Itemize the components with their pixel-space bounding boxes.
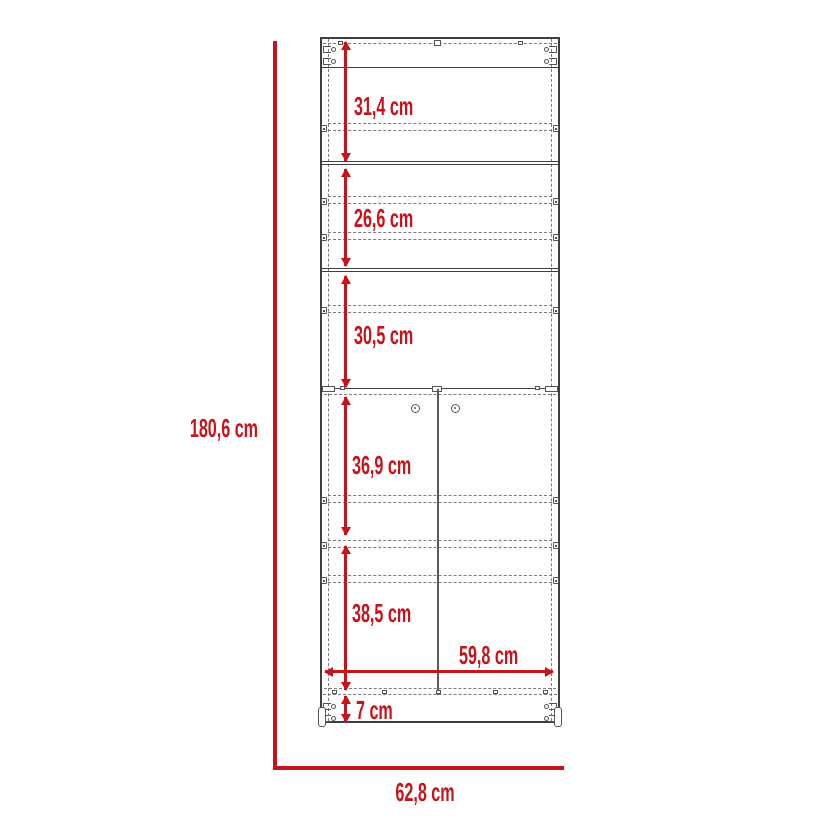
section-height-label: 30,5 cm	[354, 322, 413, 348]
cam-lock-icon	[436, 690, 441, 694]
dimension-arrow-second-opening	[344, 169, 347, 266]
shelf-hole-row	[328, 575, 552, 583]
shelf-peg-icon	[321, 125, 327, 132]
dimension-arrow-inner-width	[325, 670, 553, 673]
shelf-hole-row	[328, 305, 552, 313]
cam-lock-icon	[543, 46, 557, 53]
dimension-arrow-third-opening	[344, 276, 347, 387]
shelf-peg-icon	[321, 497, 327, 504]
shelf-hole-row	[328, 495, 552, 503]
fixed-shelf-line	[322, 161, 558, 165]
door-top-dashed-line	[324, 394, 556, 395]
shelf-peg-icon	[553, 234, 559, 241]
hinge-tick-icon	[545, 386, 558, 392]
cam-lock-icon	[332, 690, 337, 694]
overall-height-label: 180,6 cm	[134, 415, 258, 441]
overall-width-label: 62,8 cm	[363, 779, 487, 805]
shelf-peg-icon	[553, 125, 559, 132]
right-panel-dashed-edge	[551, 39, 552, 721]
cam-lock-icon	[434, 40, 441, 46]
cam-lock-icon	[382, 690, 387, 694]
overall-height-dimension-line	[273, 41, 277, 770]
shelf-peg-icon	[321, 198, 327, 205]
shelf-peg-icon	[321, 307, 327, 314]
door-bottom-dashed-line	[324, 688, 556, 689]
hinge-tick-icon	[322, 386, 335, 392]
fixed-shelf-line	[322, 268, 558, 272]
shelf-peg-icon	[553, 198, 559, 205]
overall-width-dimension-line	[273, 766, 564, 770]
hinge-tick-icon	[535, 386, 540, 390]
cam-lock-icon	[323, 46, 337, 53]
dimension-arrow-top-opening	[344, 42, 347, 161]
shelf-peg-icon	[553, 577, 559, 584]
dimension-arrow-door-upper	[344, 397, 347, 535]
shelf-peg-icon	[553, 497, 559, 504]
cam-lock-icon	[543, 690, 548, 694]
door-knob-icon	[451, 404, 460, 413]
top-rail-line	[322, 67, 558, 68]
section-height-label: 7 cm	[356, 697, 393, 723]
inner-width-label: 59,8 cm	[459, 642, 518, 668]
left-panel-dashed-edge	[328, 39, 329, 721]
shelf-hole-row	[328, 540, 552, 548]
door-knob-icon	[411, 404, 420, 413]
foot-icon	[554, 707, 562, 727]
cam-lock-icon	[493, 690, 498, 694]
dimension-arrow-door-lower	[344, 546, 347, 690]
shelf-hole-row	[328, 123, 552, 131]
shelf-peg-icon	[553, 542, 559, 549]
section-height-label: 38,5 cm	[352, 600, 411, 626]
cam-lock-icon	[323, 58, 337, 65]
furniture-dimension-diagram: 31,4 cm 26,6 cm 30,5 cm 36,9 cm 38,5 cm …	[0, 0, 840, 840]
foot-icon	[318, 707, 326, 727]
shelf-peg-icon	[321, 577, 327, 584]
dimension-arrow-plinth	[344, 696, 347, 722]
cam-lock-icon	[518, 41, 523, 45]
shelf-peg-icon	[321, 542, 327, 549]
shelf-peg-icon	[553, 307, 559, 314]
shelf-hole-row	[328, 232, 552, 240]
section-height-label: 31,4 cm	[354, 93, 413, 119]
shelf-peg-icon	[321, 234, 327, 241]
section-height-label: 26,6 cm	[354, 205, 413, 231]
section-height-label: 36,9 cm	[352, 452, 411, 478]
cam-lock-icon	[543, 58, 557, 65]
